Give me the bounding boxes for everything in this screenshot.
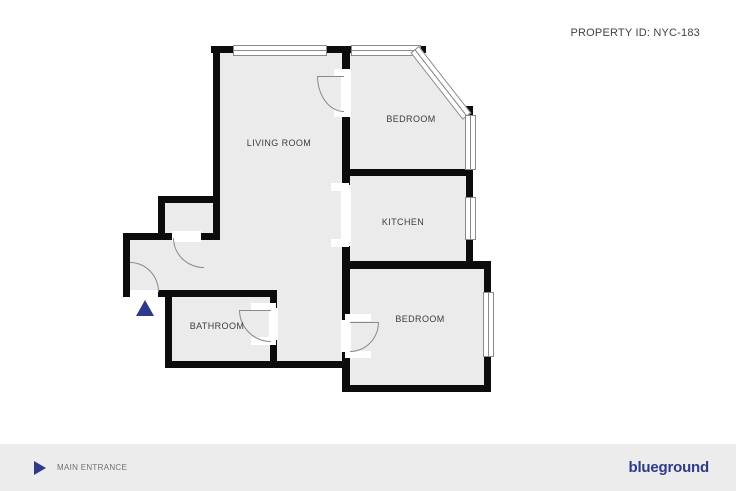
room-label-bedroom-bottom: BEDROOM (395, 314, 444, 324)
window (465, 197, 476, 240)
floor-plan: LIVING ROOM BEDROOM KITCHEN BEDROOM BATH… (0, 0, 736, 491)
bedroom-top-kitchen-floor (347, 50, 469, 266)
room-label-living-room: LIVING ROOM (247, 138, 311, 148)
wall (342, 385, 491, 392)
wall (342, 261, 491, 269)
footer-bar: MAIN ENTRANCE blueground (0, 444, 736, 491)
wall (342, 169, 473, 176)
entrance-legend: MAIN ENTRANCE (34, 461, 127, 475)
entrance-legend-label: MAIN ENTRANCE (57, 463, 127, 472)
wall (158, 196, 220, 203)
wall (158, 290, 277, 297)
window (465, 115, 476, 170)
wall (342, 352, 350, 392)
door-opening (341, 185, 351, 246)
room-label-kitchen: KITCHEN (382, 217, 424, 227)
window (351, 45, 421, 56)
door-jamb (331, 183, 349, 191)
blueground-logo: blueground (629, 459, 710, 476)
triangle-right-icon (34, 461, 46, 475)
wall (213, 46, 220, 240)
window (483, 292, 494, 357)
door-jamb (331, 239, 349, 247)
triangle-up-icon (136, 300, 154, 316)
wall (165, 361, 350, 368)
wall (165, 290, 172, 368)
room-label-bathroom: BATHROOM (190, 321, 245, 331)
wall (342, 269, 350, 320)
door-jamb (345, 314, 371, 321)
door-jamb (334, 69, 351, 76)
window (233, 45, 327, 56)
wall (123, 233, 130, 297)
door-jamb (345, 351, 371, 358)
room-label-bedroom-top: BEDROOM (386, 114, 435, 124)
